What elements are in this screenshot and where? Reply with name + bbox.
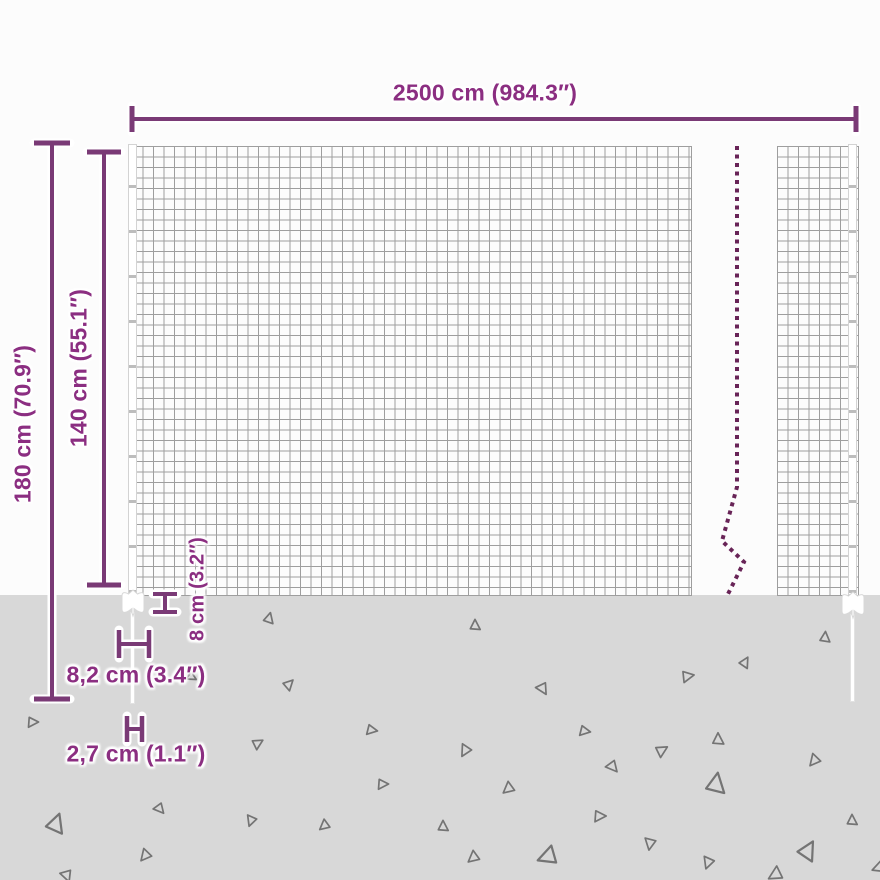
width-dimension-line [132, 106, 856, 132]
width-label: 2500 cm (984.3″) [393, 80, 577, 107]
anchor-width-label: 8,2 cm (3.4″) [67, 662, 206, 689]
fence-dimension-diagram: 2500 cm (984.3″) 180 cm (70.9″) 140 cm (… [0, 0, 880, 880]
underground-depth-label: 8 cm (3.2″) [187, 537, 210, 641]
post-diameter-label: 2,7 cm (1.1″) [67, 741, 206, 768]
total-height-label: 180 cm (70.9″) [10, 345, 37, 503]
post-diameter-dimension-line [127, 716, 142, 742]
mesh-height-label: 140 cm (55.1″) [66, 289, 93, 447]
